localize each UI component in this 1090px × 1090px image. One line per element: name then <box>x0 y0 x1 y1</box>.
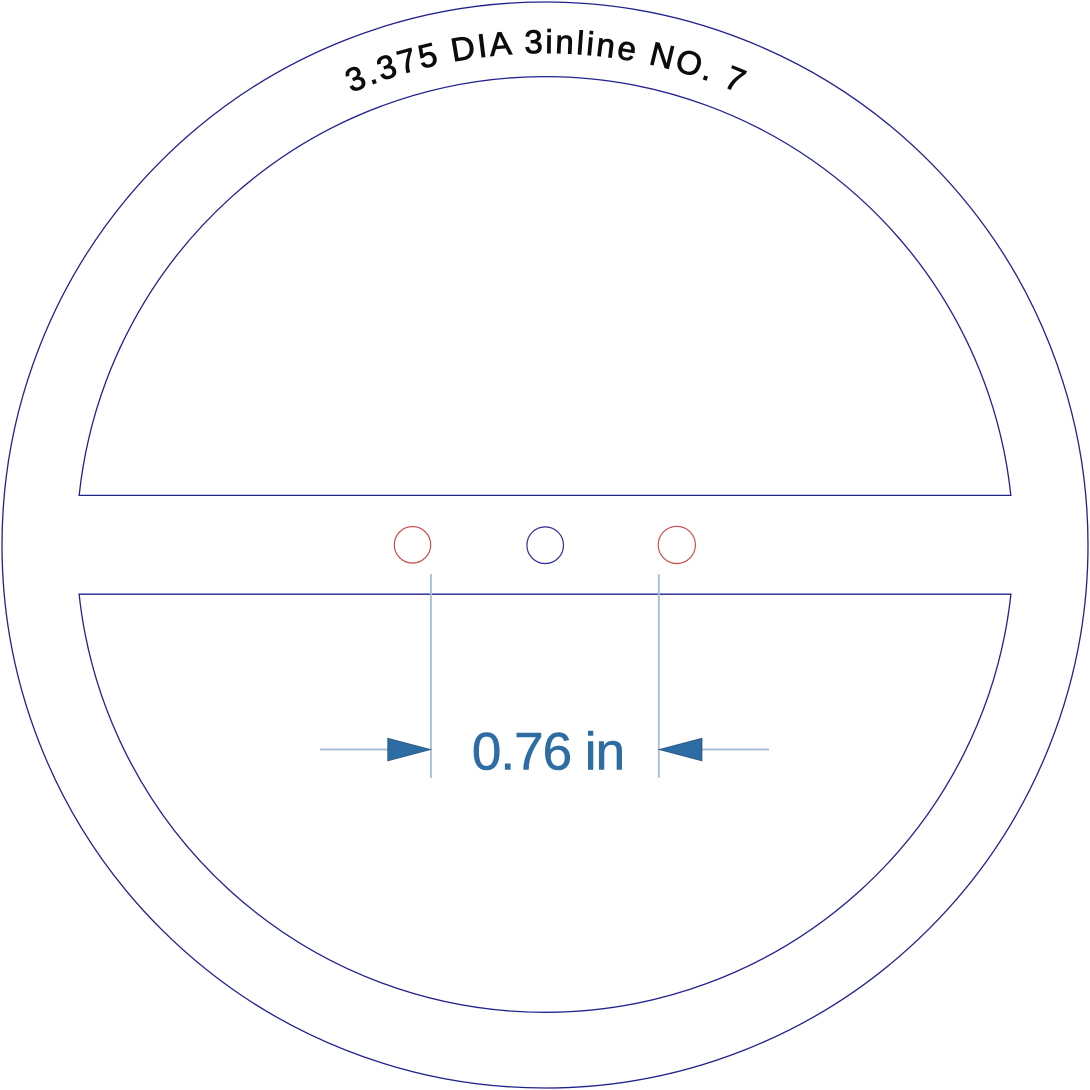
svg-text:3.375 DIA 3inline NO. 7: 3.375 DIA 3inline NO. 7 <box>340 22 753 100</box>
svg-text:0.76 in: 0.76 in <box>472 723 624 782</box>
